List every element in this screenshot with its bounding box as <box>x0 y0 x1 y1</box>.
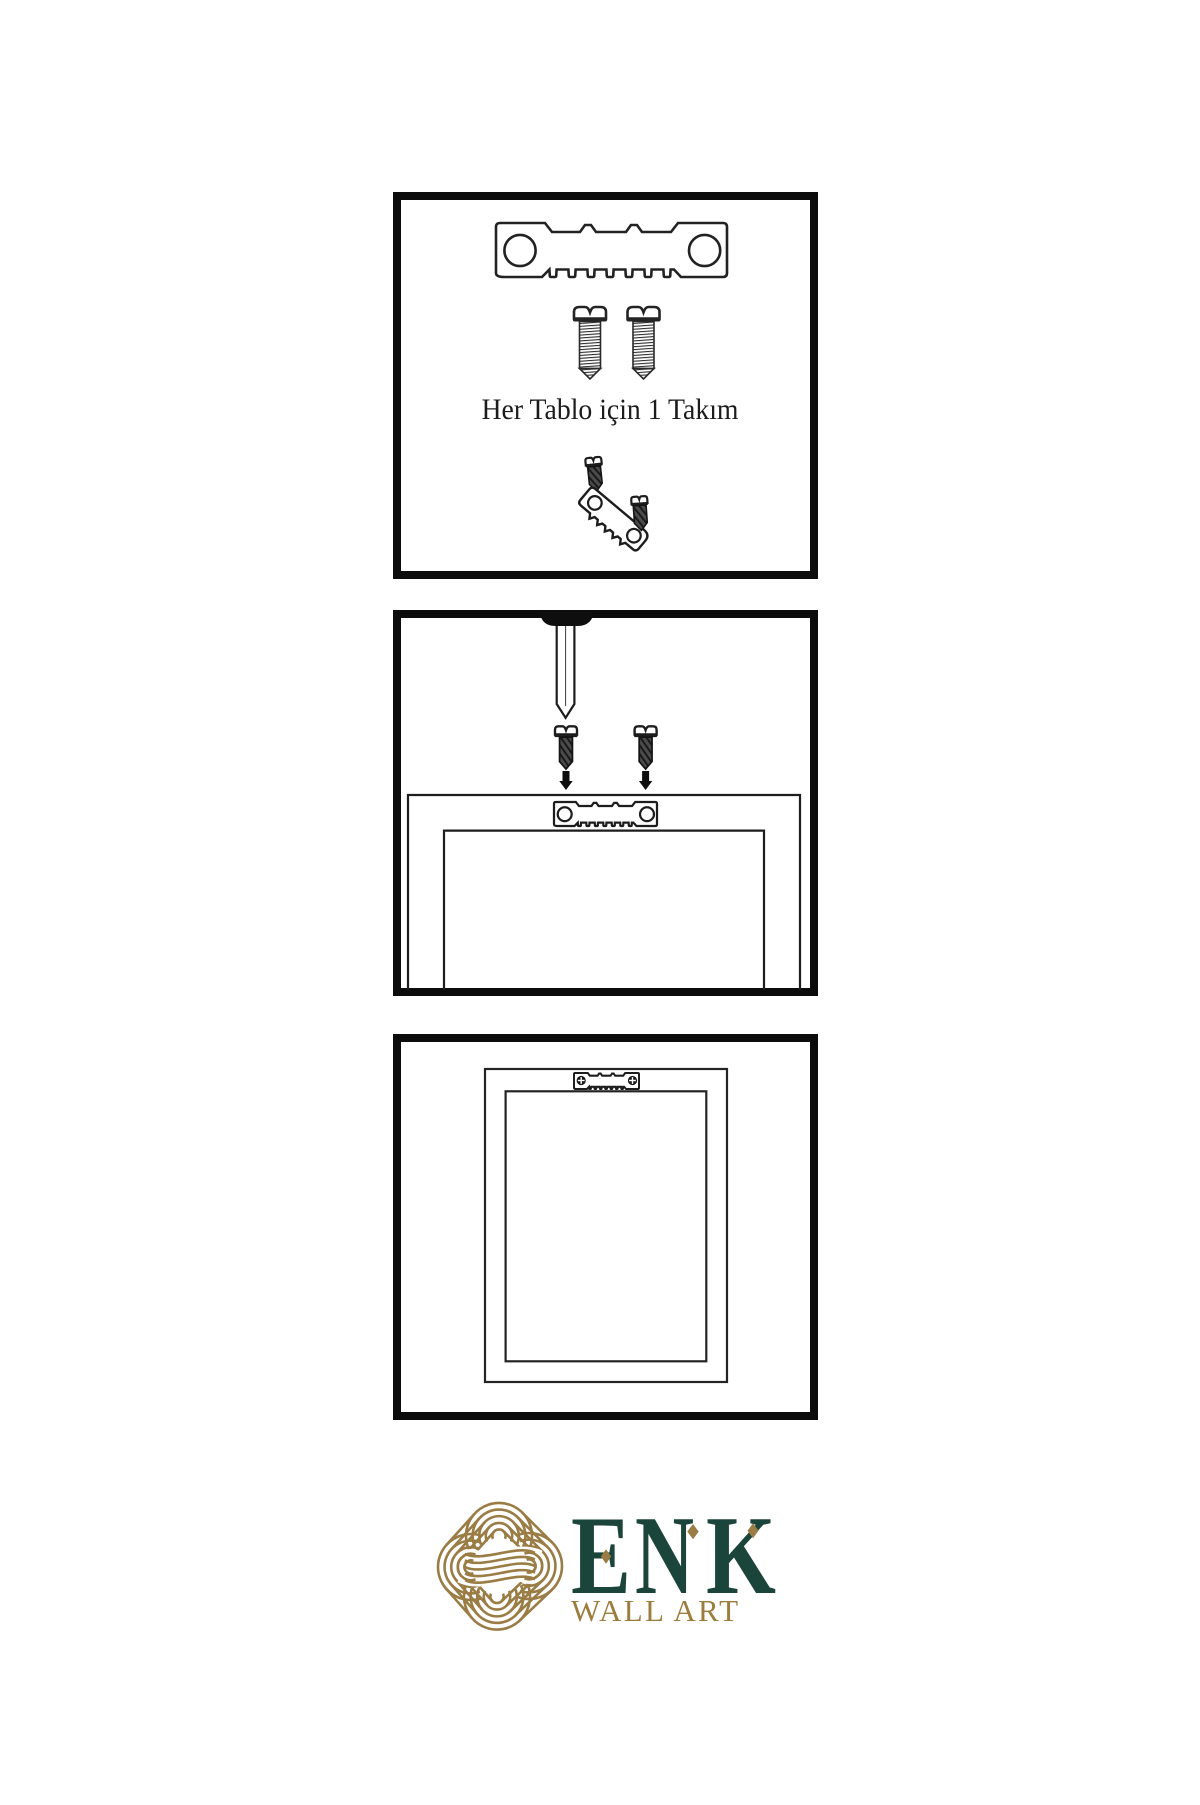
svg-text:WALL ART: WALL ART <box>571 1593 738 1628</box>
svg-text:Her Tablo için 1 Takım: Her Tablo için 1 Takım <box>482 393 739 426</box>
